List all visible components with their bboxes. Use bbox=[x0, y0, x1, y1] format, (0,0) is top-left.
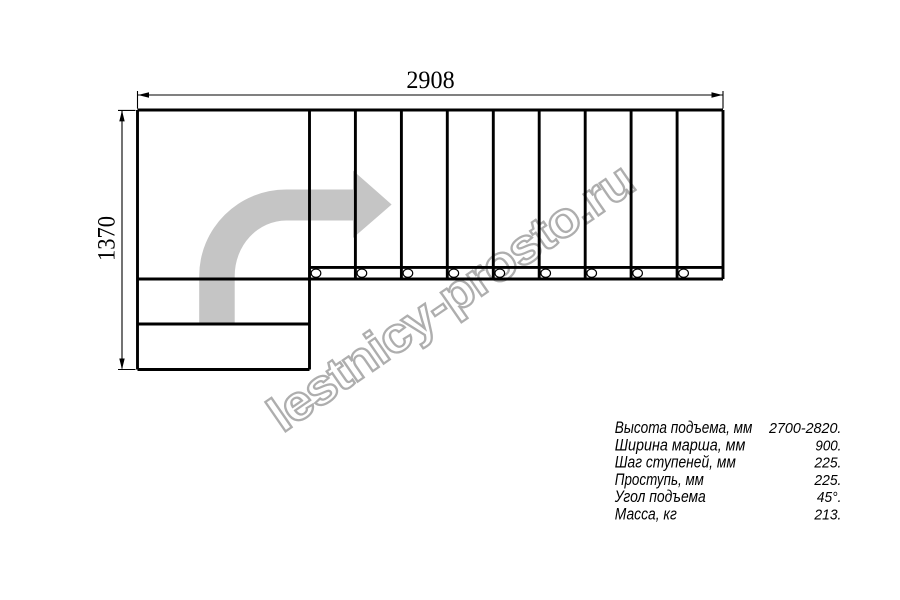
svg-text:45°.: 45°. bbox=[817, 490, 842, 506]
svg-text:Угол подъема: Угол подъема bbox=[614, 488, 706, 506]
svg-text:Масса, кг: Масса, кг bbox=[615, 505, 677, 523]
svg-text:Проступь, мм: Проступь, мм bbox=[615, 471, 704, 489]
svg-text:2700-2820.: 2700-2820. bbox=[768, 421, 841, 437]
svg-text:225.: 225. bbox=[813, 456, 841, 472]
svg-text:213.: 213. bbox=[813, 507, 841, 523]
svg-text:2908: 2908 bbox=[406, 67, 454, 94]
svg-text:Ширина марша, мм: Ширина марша, мм bbox=[615, 436, 746, 454]
svg-text:Шаг ступеней, мм: Шаг ступеней, мм bbox=[615, 454, 736, 472]
svg-text:900.: 900. bbox=[815, 438, 841, 454]
svg-text:225.: 225. bbox=[813, 473, 841, 489]
svg-text:1370: 1370 bbox=[93, 216, 120, 261]
svg-text:Высота подъема, мм: Высота подъема, мм bbox=[615, 419, 753, 437]
